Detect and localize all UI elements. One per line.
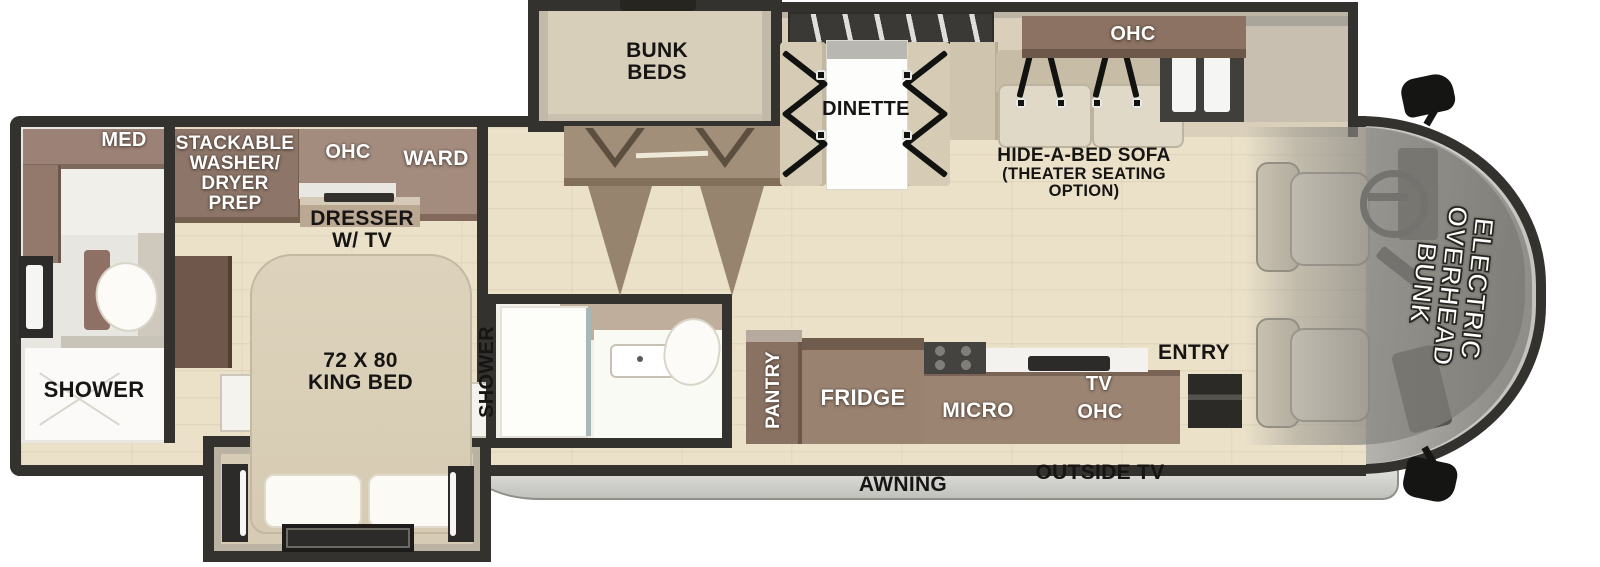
label-rear-shower: SHOWER bbox=[30, 378, 158, 401]
rear-bath-window-pane bbox=[26, 265, 43, 329]
label-micro: MICRO bbox=[920, 400, 1036, 422]
seatbelt-buckle bbox=[902, 70, 912, 80]
king-bed-pillow bbox=[264, 474, 362, 528]
label-bunk-beds: BUNK BEDS bbox=[597, 40, 717, 84]
label-kitchen-tv: TV bbox=[1068, 374, 1130, 395]
seatbelt-buckle bbox=[1092, 98, 1102, 108]
rear-bath-side-cabinet bbox=[23, 165, 61, 263]
label-med: MED bbox=[94, 130, 154, 151]
seatbelt-buckle bbox=[902, 130, 912, 140]
label-outside-tv: OUTSIDE TV bbox=[1005, 462, 1195, 484]
king-slide-rear-window bbox=[282, 524, 414, 552]
bunk-table-leg bbox=[700, 186, 764, 296]
bunk-table-leg-inner bbox=[703, 128, 747, 158]
label-pantry: PANTRY bbox=[764, 335, 784, 445]
front-wall-strip bbox=[1244, 16, 1348, 122]
mid-bath-sink-drain bbox=[637, 356, 643, 362]
dresser-tv-icon bbox=[324, 193, 394, 202]
label-king-bed: 72 X 80 KING BED bbox=[268, 350, 453, 394]
mid-shower-glass-door bbox=[586, 308, 591, 436]
seatbelt-buckle bbox=[1016, 98, 1026, 108]
mid-shower-pan bbox=[500, 306, 588, 438]
label-kitchen-ohc: OHC bbox=[1066, 402, 1134, 423]
bunk-table-leg bbox=[588, 186, 652, 296]
side-mirror-top-icon bbox=[1399, 71, 1458, 119]
label-sofa-ohc: OHC bbox=[1098, 24, 1168, 45]
bunk-slideout-handle bbox=[620, 0, 696, 11]
bedroom-closet bbox=[174, 256, 232, 368]
label-hide-a-bed-sofa: HIDE-A-BED SOFA bbox=[986, 146, 1182, 166]
label-mid-shower: SHOWER bbox=[477, 307, 498, 437]
seatbelt-buckle bbox=[816, 70, 826, 80]
sofa-cushion bbox=[998, 84, 1092, 148]
kitchen-tv-icon bbox=[1028, 356, 1110, 371]
seatbelt-buckle bbox=[1132, 98, 1142, 108]
rv-floorplan: MED SHOWER STACKABLE WASHER/ DRYER PREP … bbox=[0, 0, 1600, 567]
king-slide-right-window-pane bbox=[450, 472, 456, 536]
seatbelt-buckle bbox=[1056, 98, 1066, 108]
label-washer-dryer-prep: STACKABLE WASHER/ DRYER PREP bbox=[166, 134, 304, 214]
cooktop-icon bbox=[924, 342, 986, 374]
front-side-window-pane bbox=[1172, 56, 1196, 112]
bunk-table-leg-inner bbox=[593, 128, 637, 158]
front-side-window-pane bbox=[1204, 56, 1230, 112]
label-ward: WARD bbox=[398, 148, 474, 170]
label-awning: AWNING bbox=[828, 474, 978, 496]
side-mirror-bottom-icon bbox=[1400, 455, 1459, 505]
king-slide-left-window-pane bbox=[240, 470, 246, 536]
rear-bath-counter bbox=[61, 169, 164, 235]
seatbelt-buckle bbox=[816, 130, 826, 140]
label-entry: ENTRY bbox=[1146, 342, 1242, 364]
sofa-corner-cabinet bbox=[950, 42, 998, 140]
label-dinette: DINETTE bbox=[816, 99, 916, 120]
entry-steps bbox=[1188, 374, 1242, 428]
label-bedroom-ohc: OHC bbox=[316, 142, 380, 163]
rear-bath-shelf bbox=[61, 336, 164, 348]
label-fridge: FRIDGE bbox=[806, 386, 920, 409]
label-dresser-tv: DRESSER W/ TV bbox=[298, 208, 426, 252]
label-theater-seating-option: (THEATER SEATING OPTION) bbox=[990, 166, 1178, 201]
